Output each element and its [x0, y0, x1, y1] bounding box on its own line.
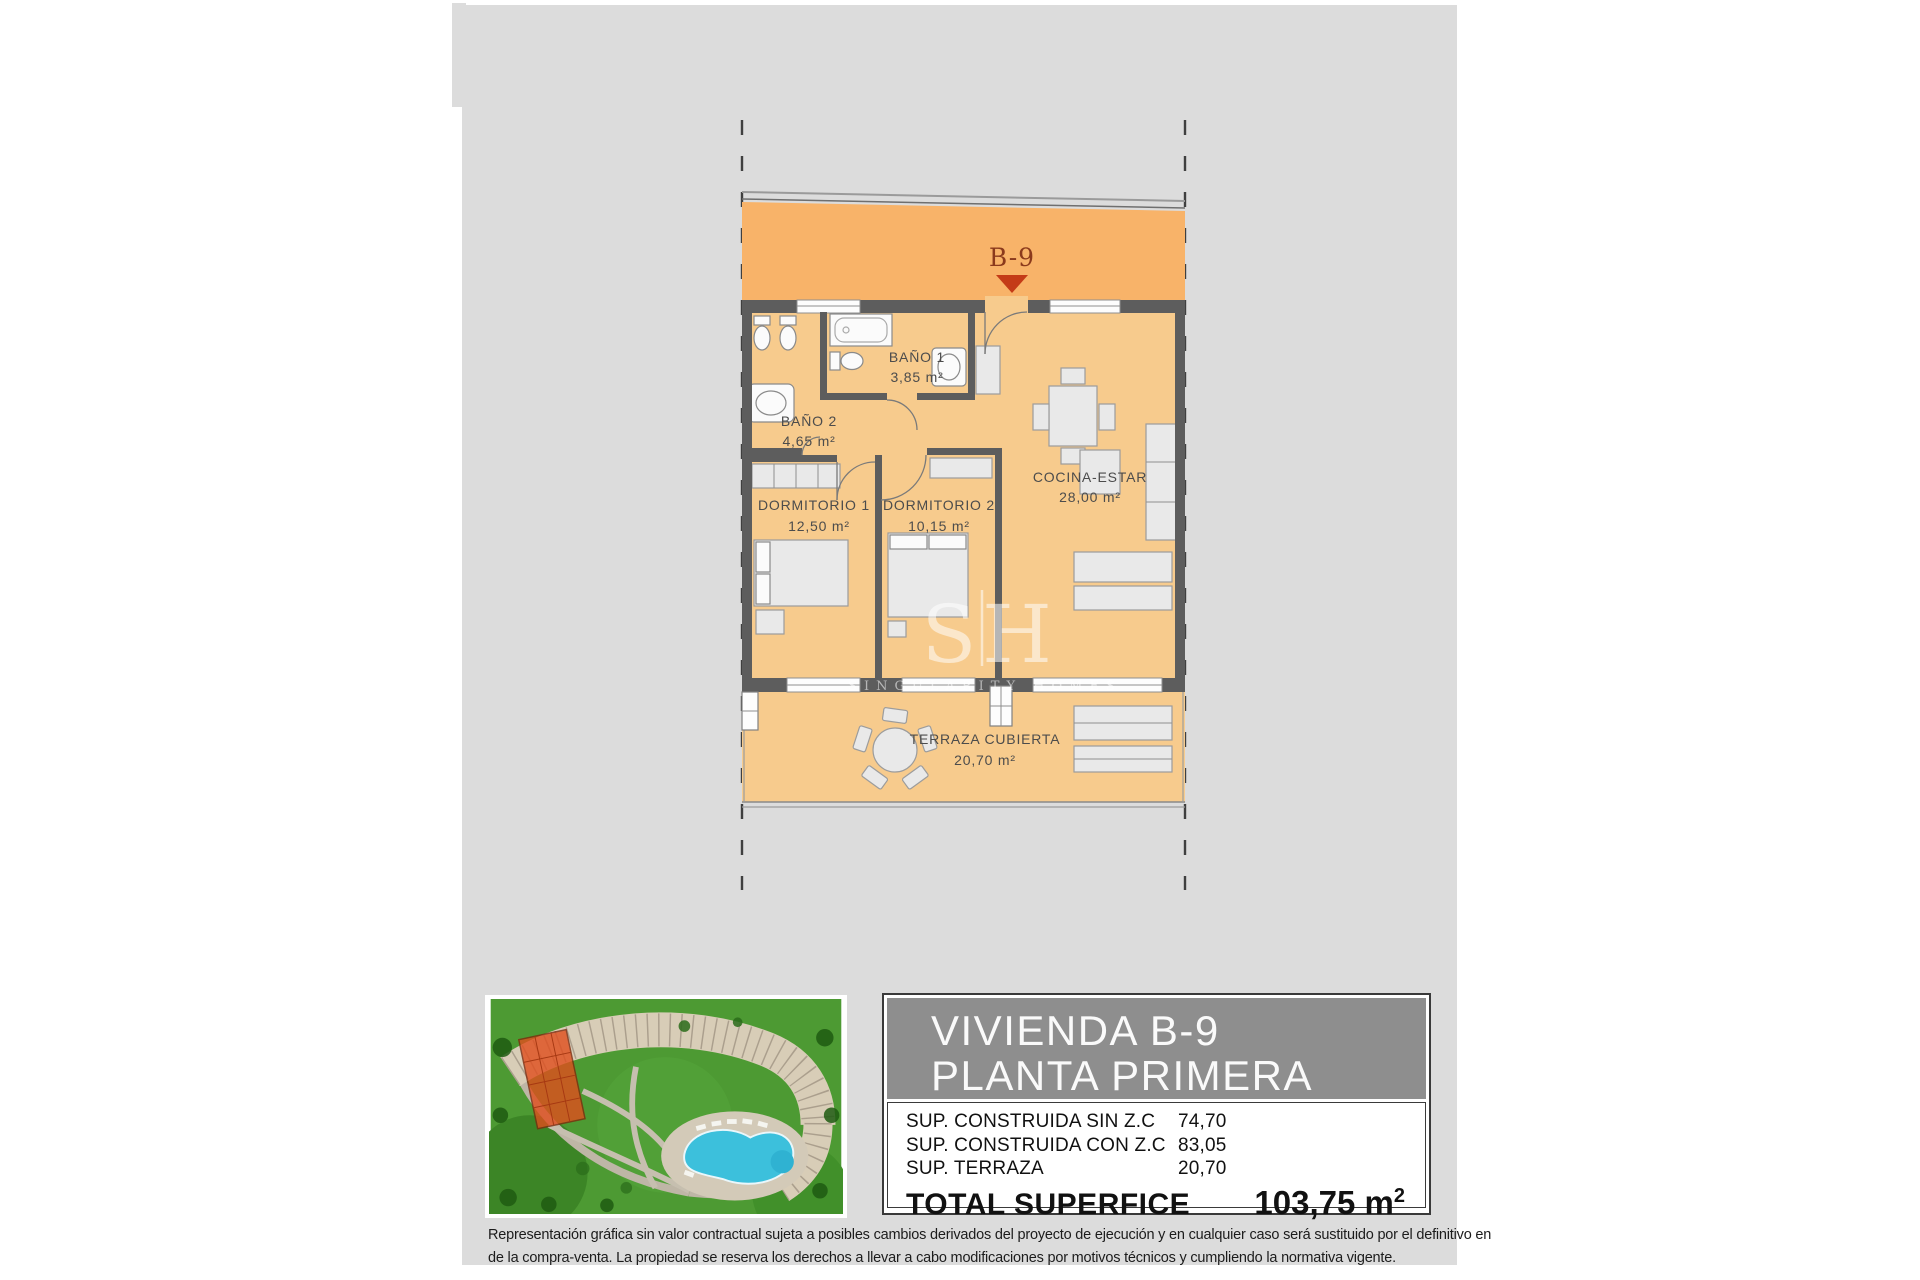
disclaimer: Representación gráfica sin valor contrac…	[488, 1224, 1450, 1270]
total-value: 103,75 m2	[1254, 1184, 1411, 1222]
svg-text:12,50 m²: 12,50 m²	[788, 518, 850, 534]
nightstand	[888, 621, 906, 637]
stat-label: SUP. CONSTRUIDA CON Z.C	[906, 1134, 1178, 1158]
chair	[1033, 404, 1049, 430]
stat-label: SUP. CONSTRUIDA SIN Z.C	[906, 1110, 1178, 1134]
stat-value: 83,05	[1178, 1134, 1411, 1158]
tv-bench	[1074, 586, 1172, 610]
unit-title: VIVIENDA B-9 PLANTA PRIMERA	[887, 998, 1426, 1099]
stat-label: SUP. TERRAZA	[906, 1157, 1178, 1181]
toilet	[830, 352, 840, 370]
stat-row: SUP. CONSTRUIDA SIN Z.C 74,70	[906, 1110, 1411, 1134]
stat-row: SUP. CONSTRUIDA CON Z.C 83,05	[906, 1134, 1411, 1158]
svg-text:H: H	[982, 588, 1052, 681]
svg-text:BAÑO 1: BAÑO 1	[889, 349, 945, 365]
bidet	[780, 316, 796, 325]
unit-title-line1: VIVIENDA B-9	[931, 1008, 1426, 1053]
total-label: TOTAL SUPERFICE	[906, 1188, 1190, 1222]
svg-text:TERRAZA CUBIERTA: TERRAZA CUBIERTA	[910, 731, 1061, 747]
svg-text:DORMITORIO 2: DORMITORIO 2	[883, 497, 995, 513]
sofa	[1146, 424, 1176, 540]
wardrobe	[930, 458, 992, 478]
svg-text:DORMITORIO 1: DORMITORIO 1	[758, 497, 870, 513]
svg-text:3,85 m²: 3,85 m²	[890, 369, 943, 385]
svg-text:SINGULARITY HOMES: SINGULARITY HOMES	[848, 679, 1122, 694]
aerial-photo-image	[489, 999, 843, 1214]
surface-stats: SUP. CONSTRUIDA SIN Z.C 74,70 SUP. CONST…	[887, 1102, 1426, 1208]
common-corridor-band	[742, 202, 1185, 300]
svg-text:10,15 m²: 10,15 m²	[908, 518, 970, 534]
disclaimer-line1: Representación gráfica sin valor contrac…	[488, 1224, 1450, 1247]
unit-label: B-9	[989, 243, 1035, 272]
chair	[882, 707, 908, 723]
stat-row: SUP. TERRAZA 20,70	[906, 1157, 1411, 1181]
pillow	[756, 574, 770, 604]
stat-value: 20,70	[1178, 1157, 1411, 1181]
chair	[1061, 368, 1085, 384]
nightstand	[756, 610, 784, 634]
svg-text:COCINA-ESTAR: COCINA-ESTAR	[1033, 469, 1147, 485]
fridge	[976, 346, 1000, 394]
pillow	[756, 542, 770, 572]
toilet	[754, 316, 770, 325]
svg-text:28,00 m²: 28,00 m²	[1059, 489, 1121, 505]
floorplan-sheet: B-9	[0, 0, 1920, 1280]
pillow	[890, 535, 927, 549]
pillow	[929, 535, 966, 549]
toilet	[841, 353, 863, 370]
chair	[1099, 404, 1115, 430]
stat-value: 74,70	[1178, 1110, 1411, 1134]
svg-text:4,65 m²: 4,65 m²	[782, 433, 835, 449]
total-row: TOTAL SUPERFICE 103,75 m2	[906, 1184, 1411, 1222]
sofa	[1074, 552, 1172, 582]
floor-plan: B-9	[462, 90, 1457, 900]
toilet	[754, 326, 770, 350]
title-block: VIVIENDA B-9 PLANTA PRIMERA SUP. CONSTRU…	[882, 993, 1431, 1215]
unit-title-line2: PLANTA PRIMERA	[931, 1053, 1426, 1098]
aerial-site-photo	[485, 995, 847, 1218]
disclaimer-line2: de la compra-venta. La propiedad se rese…	[488, 1247, 1450, 1270]
dining-table	[1049, 386, 1097, 446]
svg-text:BAÑO 2: BAÑO 2	[781, 413, 837, 429]
bidet	[780, 326, 796, 350]
entrance-opening	[985, 296, 1028, 313]
svg-text:20,70 m²: 20,70 m²	[954, 752, 1016, 768]
svg-text:S: S	[922, 588, 977, 681]
shower-basin	[756, 391, 786, 415]
